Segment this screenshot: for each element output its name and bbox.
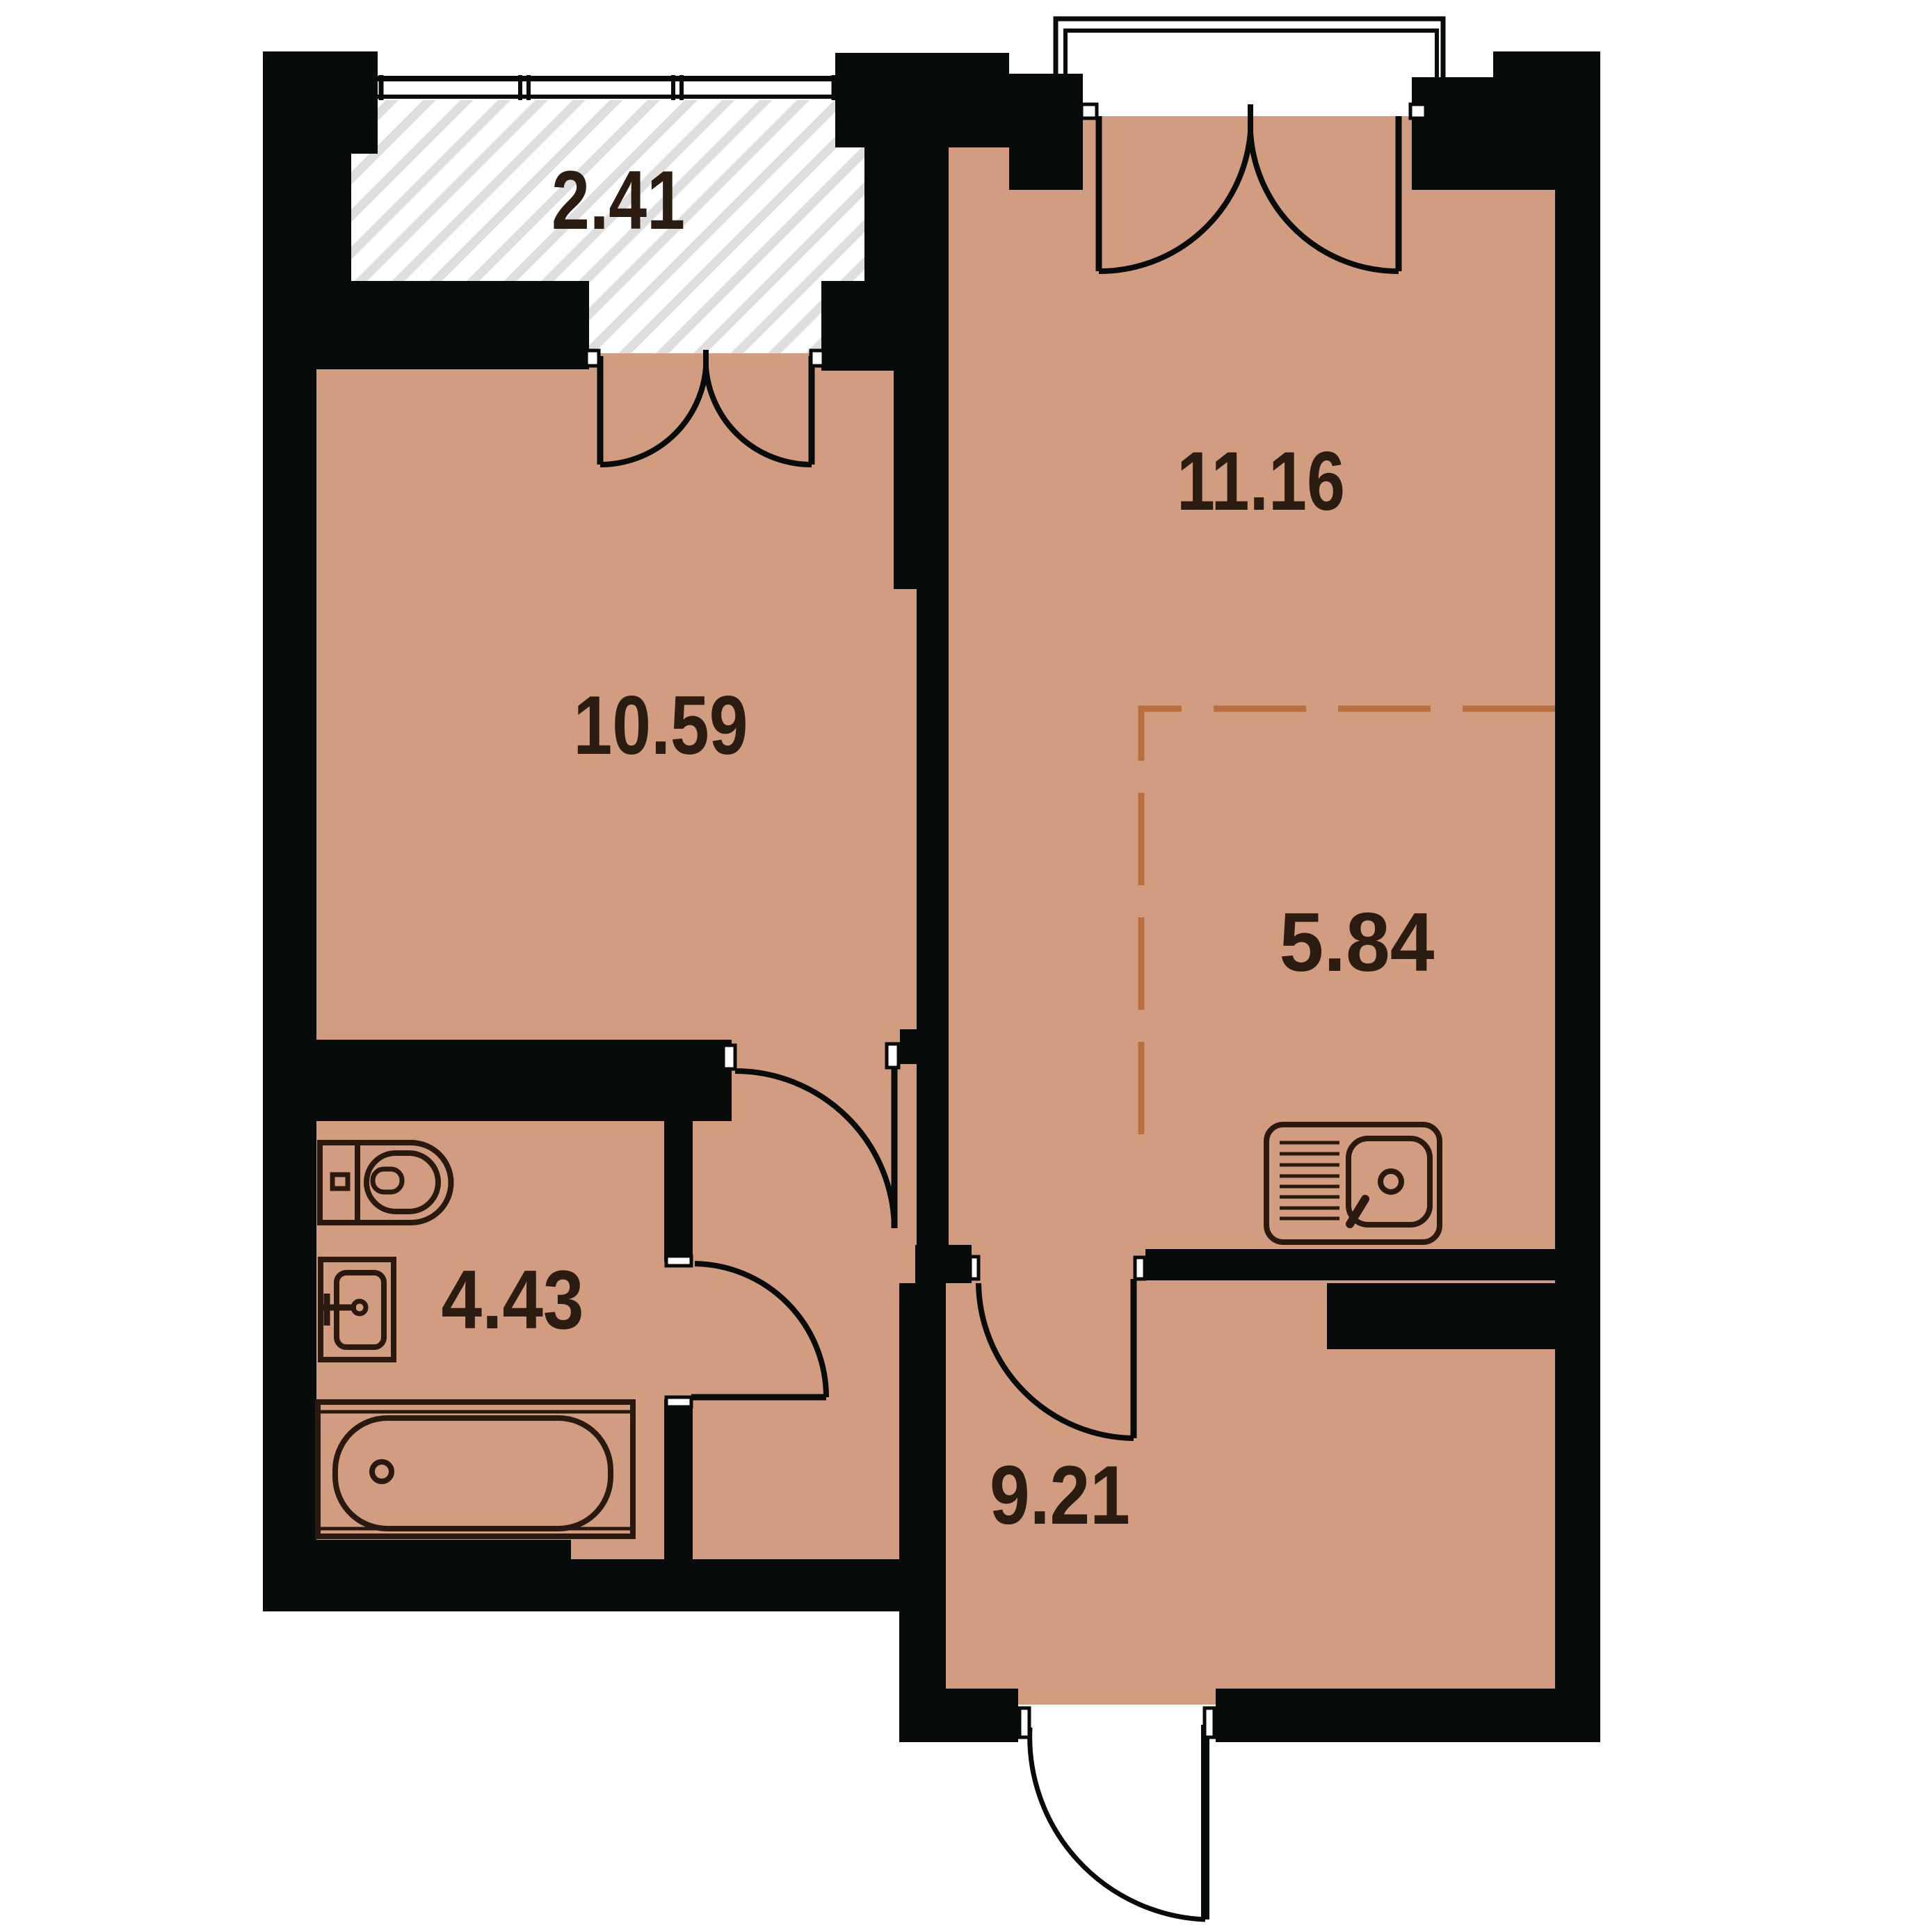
svg-text:2.41: 2.41 bbox=[552, 154, 685, 247]
svg-text:9.21: 9.21 bbox=[990, 1449, 1130, 1542]
svg-text:4.43: 4.43 bbox=[442, 1253, 584, 1346]
svg-text:10.59: 10.59 bbox=[574, 679, 748, 772]
svg-text:11.16: 11.16 bbox=[1177, 435, 1345, 528]
svg-text:5.84: 5.84 bbox=[1280, 896, 1435, 989]
